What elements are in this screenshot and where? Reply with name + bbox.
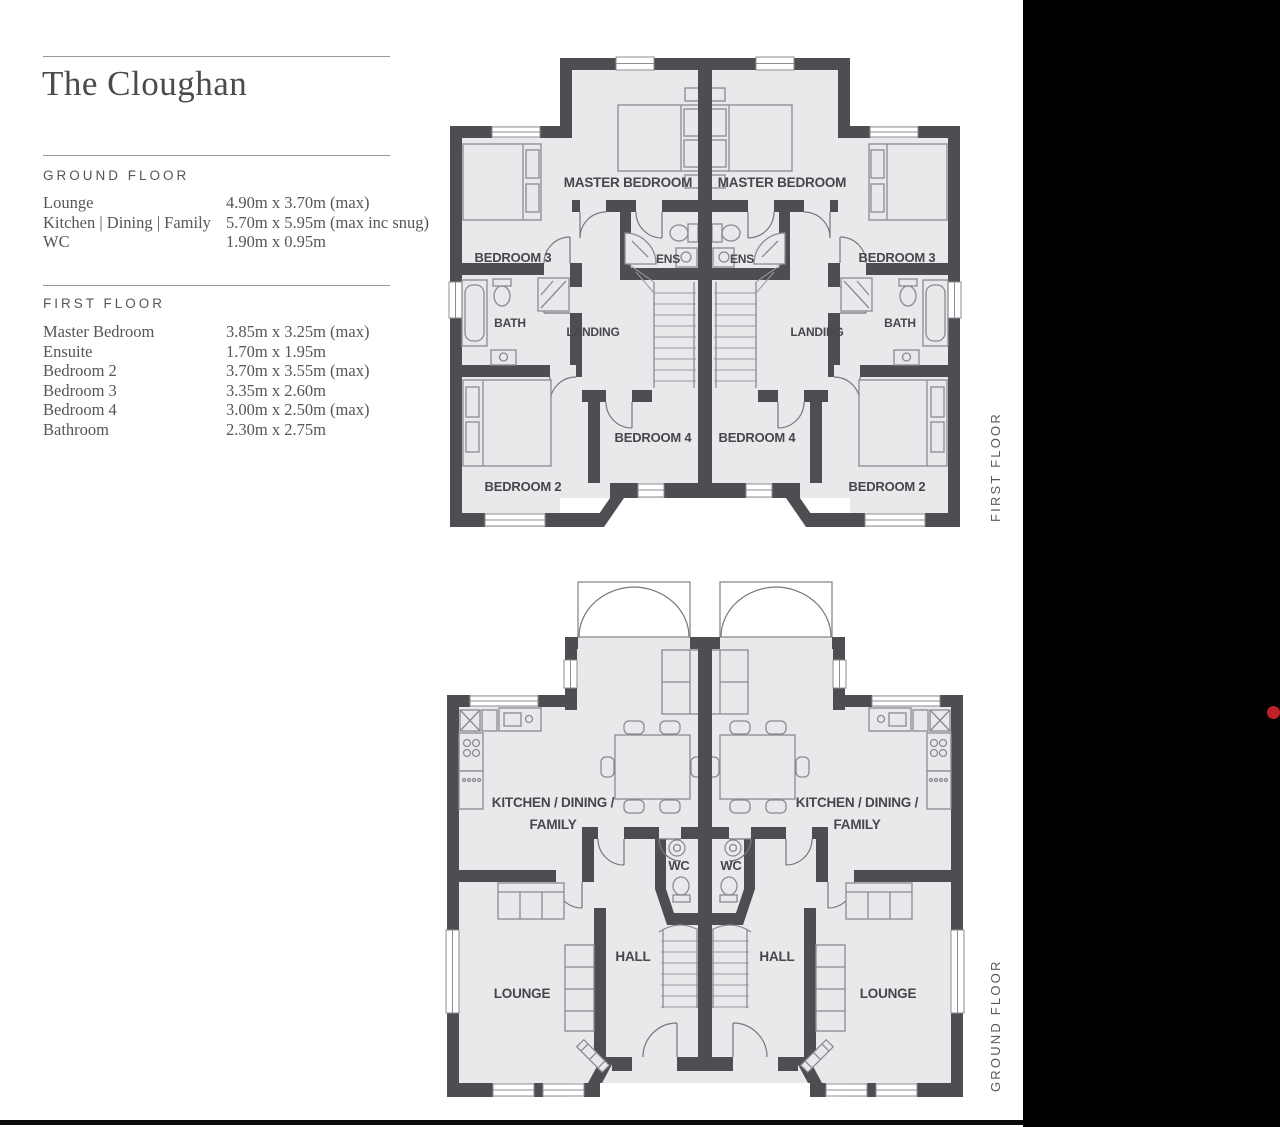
bedroom2-bed	[463, 380, 551, 466]
dim-value: 3.00m x 2.50m (max)	[226, 400, 369, 420]
room-label-master-bedroom-left: MASTER BEDROOM	[564, 175, 692, 190]
room-label-landing-right: LANDING	[790, 325, 843, 339]
first-floor-side-label: FIRST FLOOR	[988, 412, 1003, 522]
room-label-lounge-right: LOUNGE	[860, 986, 917, 1001]
dim-label: Ensuite	[43, 342, 226, 362]
room-label-bedroom3-right: BEDROOM 3	[859, 250, 936, 265]
dim-label: Lounge	[43, 193, 226, 213]
ground-floor-dimensions: Lounge 4.90m x 3.70m (max) Kitchen | Din…	[43, 193, 429, 252]
dim-label: Bedroom 2	[43, 361, 226, 381]
room-label-kitchen-left-1: KITCHEN / DINING /	[492, 795, 615, 810]
room-label-bath-left: BATH	[494, 316, 526, 330]
bottom-divider	[0, 1120, 1023, 1125]
dim-label: Master Bedroom	[43, 322, 226, 342]
bedroom3-bed	[463, 144, 541, 220]
room-label-kitchen-right-2: FAMILY	[833, 817, 880, 832]
dim-value: 3.35m x 2.60m	[226, 381, 369, 401]
divider-top	[43, 56, 390, 57]
first-floor-dimensions: Master Bedroom 3.85m x 3.25m (max) Ensui…	[43, 322, 369, 440]
red-dot-marker	[1267, 706, 1280, 719]
room-label-bedroom4-left: BEDROOM 4	[615, 430, 693, 445]
room-label-bath-right: BATH	[884, 316, 916, 330]
room-label-ensuite-right: ENS	[730, 252, 754, 266]
room-label-master-bedroom-right: MASTER BEDROOM	[718, 175, 846, 190]
room-label-bedroom2-right: BEDROOM 2	[849, 479, 926, 494]
dim-value: 2.30m x 2.75m	[226, 420, 369, 440]
ground-floor-heading: GROUND FLOOR	[43, 168, 189, 183]
brochure-page: The Cloughan GROUND FLOOR Lounge 4.90m x…	[0, 0, 1280, 1127]
viewer-side-panel	[1023, 0, 1280, 1127]
dim-value: 3.85m x 3.25m (max)	[226, 322, 369, 342]
dim-label: Bedroom 4	[43, 400, 226, 420]
room-label-hall-left: HALL	[615, 949, 650, 964]
room-label-bedroom3-left: BEDROOM 3	[475, 250, 552, 265]
french-doors	[578, 582, 690, 637]
room-label-kitchen-right-1: KITCHEN / DINING /	[796, 795, 919, 810]
room-label-landing-left: LANDING	[566, 325, 619, 339]
dining-table	[601, 721, 704, 813]
page-title: The Cloughan	[42, 64, 247, 104]
divider-ground-floor	[43, 155, 390, 156]
room-label-wc-right: WC	[720, 858, 742, 873]
party-wall	[698, 637, 712, 1071]
room-label-wc-left: WC	[668, 858, 690, 873]
dim-label: Bedroom 3	[43, 381, 226, 401]
room-label-bedroom2-left: BEDROOM 2	[485, 479, 562, 494]
room-label-ensuite-left: ENS	[656, 252, 680, 266]
first-floor-heading: FIRST FLOOR	[43, 296, 165, 311]
dim-label: Bathroom	[43, 420, 226, 440]
ground-floor-plan: KITCHEN / DINING / FAMILY KITCHEN / DINI…	[438, 580, 972, 1105]
room-label-lounge-left: LOUNGE	[494, 986, 551, 1001]
room-label-hall-right: HALL	[759, 949, 794, 964]
dim-value: 1.90m x 0.95m	[226, 232, 429, 252]
dim-label: WC	[43, 232, 226, 252]
family-sofa	[662, 650, 702, 714]
dim-value: 1.70m x 1.95m	[226, 342, 369, 362]
ground-floor-side-label: GROUND FLOOR	[988, 959, 1003, 1092]
dim-value: 4.90m x 3.70m (max)	[226, 193, 429, 213]
room-label-bedroom4-right: BEDROOM 4	[719, 430, 797, 445]
room-label-kitchen-left-2: FAMILY	[529, 817, 576, 832]
divider-first-floor	[43, 285, 390, 286]
dim-value: 5.70m x 5.95m (max inc snug)	[226, 213, 429, 233]
dim-value: 3.70m x 3.55m (max)	[226, 361, 369, 381]
dim-label: Kitchen | Dining | Family	[43, 213, 226, 233]
party-wall	[698, 58, 712, 498]
first-floor-plan: MASTER BEDROOM MASTER BEDROOM BEDROOM 3 …	[438, 50, 972, 535]
